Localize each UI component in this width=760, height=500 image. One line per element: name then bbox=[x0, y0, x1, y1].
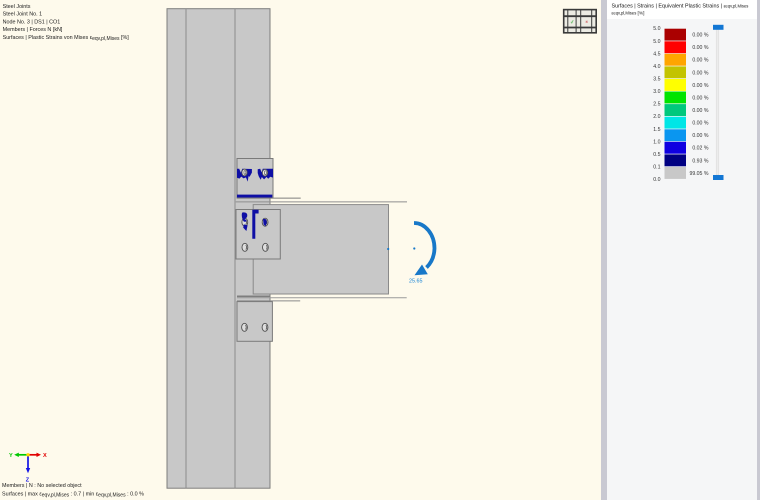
svg-text:0.02 %: 0.02 % bbox=[692, 146, 709, 152]
svg-text:1.0: 1.0 bbox=[653, 139, 660, 145]
svg-text:5.0: 5.0 bbox=[653, 39, 660, 45]
svg-text:Node No. 3 | DS1 | CO1: Node No. 3 | DS1 | CO1 bbox=[3, 19, 61, 25]
svg-text:0.00 %: 0.00 % bbox=[692, 133, 709, 139]
svg-text:Surfaces | max εeqv,pl,Mises :: Surfaces | max εeqv,pl,Mises : 0.7 | min… bbox=[2, 491, 144, 498]
svg-text:Steel Joints: Steel Joints bbox=[3, 4, 31, 10]
svg-text:0.00 %: 0.00 % bbox=[692, 96, 709, 102]
svg-text:Steel Joint No. 1: Steel Joint No. 1 bbox=[3, 12, 43, 18]
svg-text:0.1: 0.1 bbox=[653, 165, 660, 171]
svg-text:0.00 %: 0.00 % bbox=[692, 58, 709, 64]
svg-text:99.05 %: 99.05 % bbox=[689, 171, 708, 177]
svg-text:2.5: 2.5 bbox=[653, 102, 660, 108]
svg-text:Members | Forces N [kN]: Members | Forces N [kN] bbox=[3, 27, 63, 33]
svg-text:2.0: 2.0 bbox=[653, 114, 660, 120]
svg-text:0.93 %: 0.93 % bbox=[692, 158, 709, 164]
svg-text:3.0: 3.0 bbox=[653, 89, 660, 95]
svg-text:0.00 %: 0.00 % bbox=[692, 33, 709, 39]
svg-text:0.00 %: 0.00 % bbox=[692, 121, 709, 127]
svg-text:0.00 %: 0.00 % bbox=[692, 45, 709, 51]
svg-text:4.0: 4.0 bbox=[653, 64, 660, 70]
svg-text:X: X bbox=[43, 453, 47, 459]
svg-text:3.5: 3.5 bbox=[653, 77, 660, 83]
svg-text:5.0: 5.0 bbox=[653, 26, 660, 32]
svg-text:1.5: 1.5 bbox=[653, 127, 660, 133]
svg-text:0.00 %: 0.00 % bbox=[692, 83, 709, 89]
svg-text:0.00 %: 0.00 % bbox=[692, 108, 709, 114]
svg-text:4.5: 4.5 bbox=[653, 51, 660, 57]
svg-text:0.5: 0.5 bbox=[653, 152, 660, 158]
svg-text:25.65: 25.65 bbox=[409, 278, 423, 284]
svg-text:Surfaces | Plastic Strains von: Surfaces | Plastic Strains von Mises εeq… bbox=[3, 35, 130, 42]
svg-text:0.0: 0.0 bbox=[653, 177, 660, 183]
svg-text:Members | N : No selected obje: Members | N : No selected object bbox=[2, 483, 82, 489]
svg-text:0.00 %: 0.00 % bbox=[692, 70, 709, 76]
svg-text:Y: Y bbox=[9, 453, 13, 459]
